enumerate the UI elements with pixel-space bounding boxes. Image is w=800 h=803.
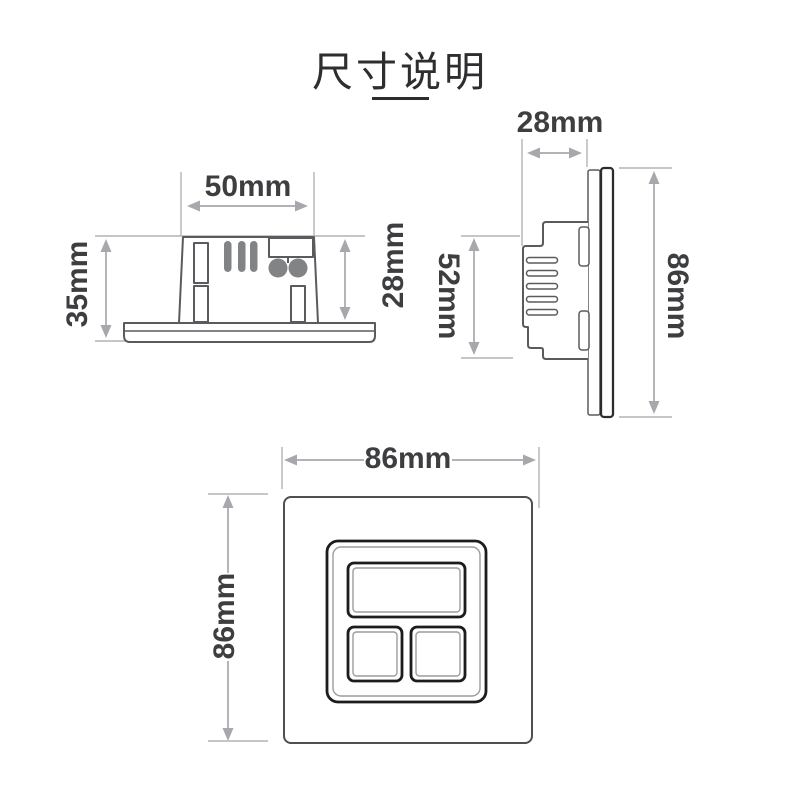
button-left [348,627,402,681]
side-width-dimension: 50mm [187,170,308,212]
profile-plate-height-dimension: 86mm [649,171,695,414]
side-view-drawing [124,237,375,342]
slot [291,286,305,322]
side-view: 50mm 35mm 28mm [61,170,410,342]
vent-fin [238,241,246,272]
slot [194,243,208,283]
front-view: 86mm 86mm [208,442,539,743]
terminal-fin [527,258,558,264]
plate-frame-edge [588,170,600,415]
vent-fin [250,241,258,272]
profile-view: 28mm 52mm 86mm [432,106,694,417]
profile-plate-height-label: 86mm [661,253,694,340]
front-height-dimension: 86mm [208,495,241,741]
front-height-label: 86mm [208,573,241,660]
side-width-label: 50mm [205,170,292,203]
button-right [411,627,465,681]
profile-view-drawing [523,168,613,417]
profile-body-height-dimension: 52mm [432,238,480,355]
panel-edge [601,168,613,417]
terminal-fin [527,284,558,290]
side-depth-label: 28mm [377,222,410,309]
terminal-screw [289,259,308,278]
profile-depth-dimension: 28mm [517,106,604,159]
mounting-clip [579,227,589,266]
terminal-fin [527,310,558,316]
dimension-sheet: 尺寸说明 50mm 35mm [0,0,800,803]
profile-depth-label: 28mm [517,106,604,139]
terminal-fin [527,271,558,277]
front-width-dimension: 86mm [284,442,536,475]
display-window [348,563,465,617]
terminal-fin [527,297,558,303]
base-plate [124,323,375,342]
terminal-screw [269,259,288,278]
slot [194,286,208,322]
vent-fin [224,241,232,272]
front-view-drawing [284,497,532,743]
dimension-diagram: 50mm 35mm 28mm [0,0,800,803]
terminal-block [269,238,313,257]
mounting-clip [579,311,589,350]
front-width-label: 86mm [365,442,452,475]
side-height-label: 35mm [61,241,94,328]
side-height-dimension: 35mm [61,239,112,338]
profile-body-height-label: 52mm [432,253,465,340]
